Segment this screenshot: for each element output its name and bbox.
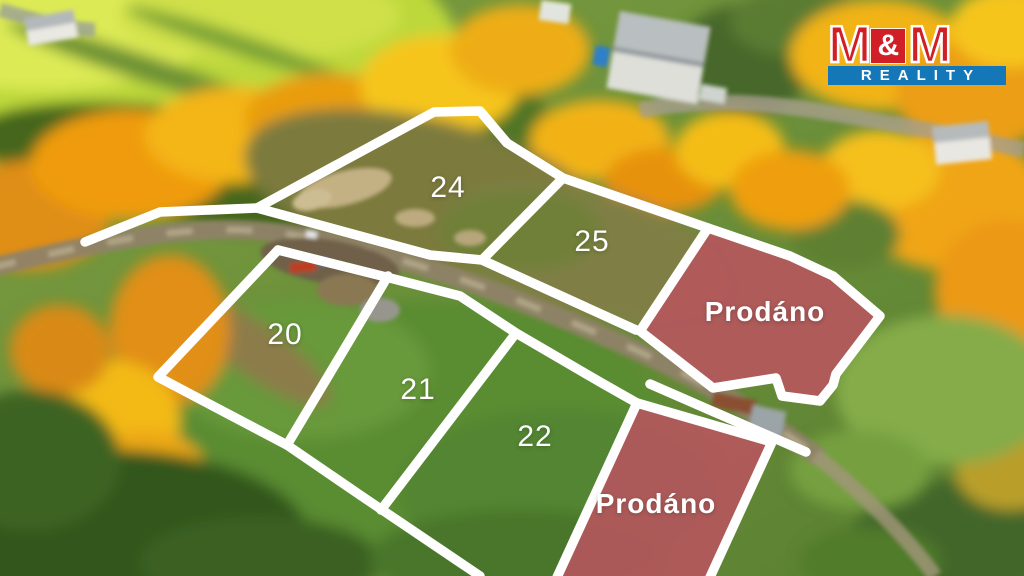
house-right (932, 121, 992, 165)
aerial-photo: 24 25 20 21 22 Prodáno Prodáno M & M REA… (0, 0, 1024, 576)
sold-label-2: Prodáno (596, 488, 717, 520)
plot-label-25: 25 (574, 225, 609, 259)
warehouse-building (606, 11, 710, 104)
plot-label-24: 24 (430, 171, 465, 205)
brand-logo: M & M REALITY (828, 24, 1006, 85)
plot-label-22: 22 (517, 420, 552, 454)
sold-label-1: Prodáno (705, 296, 826, 328)
logo-ampersand: & (871, 29, 905, 63)
logo-mm-row: M & M (828, 24, 1006, 64)
plot-label-21: 21 (400, 373, 435, 407)
plot-map-graphic (0, 0, 1024, 576)
plot-label-20: 20 (267, 318, 302, 352)
small-building (539, 0, 571, 24)
logo-letter-m-right: M (908, 26, 948, 64)
logo-letter-m-left: M (828, 26, 868, 64)
